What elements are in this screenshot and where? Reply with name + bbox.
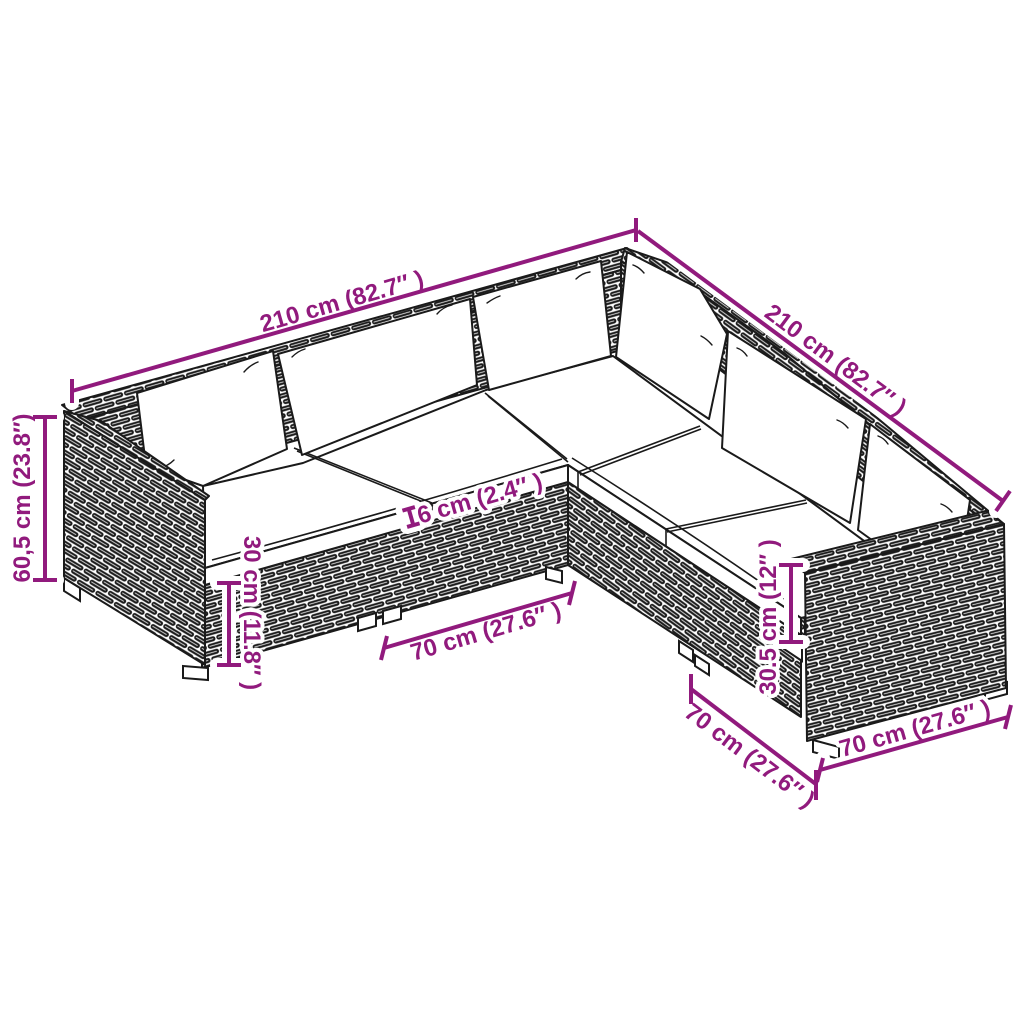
svg-text:30.5 cm (12″ ): 30.5 cm (12″ )	[755, 539, 782, 695]
svg-text:60,5 cm (23.8″): 60,5 cm (23.8″)	[9, 414, 36, 583]
svg-text:30 cm (11.8″ ): 30 cm (11.8″ )	[238, 536, 265, 690]
